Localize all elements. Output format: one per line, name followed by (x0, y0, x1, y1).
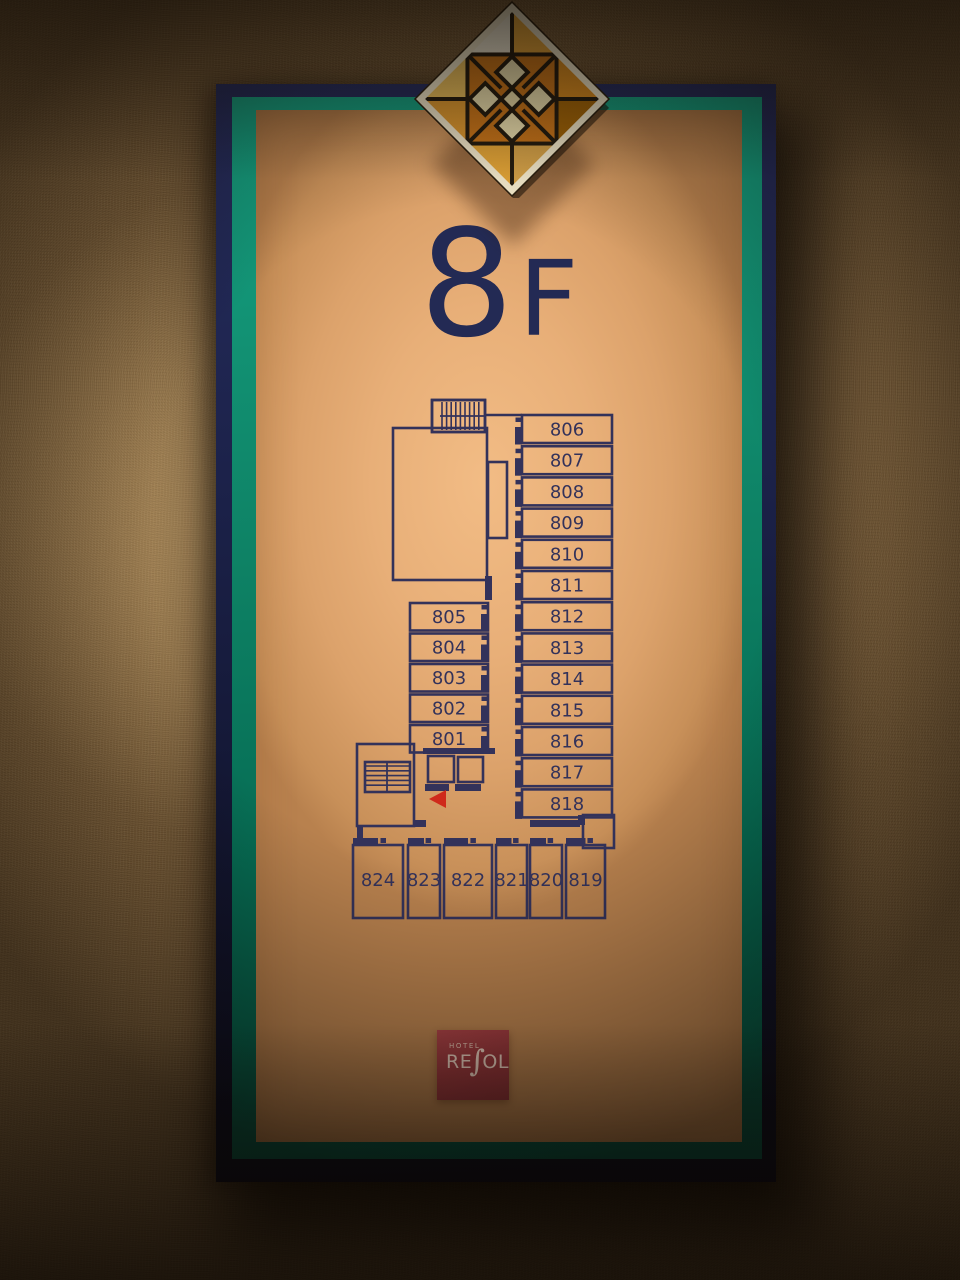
room-label-807: 807 (550, 451, 584, 472)
you-are-here-triangle-icon (429, 790, 446, 808)
room-label-820: 820 (529, 870, 563, 891)
wall-segment (515, 458, 522, 476)
room-803: 803 (410, 664, 488, 692)
door-jamb (548, 838, 554, 843)
door-jamb (516, 418, 522, 423)
wall-segment (515, 739, 522, 757)
room-809: 809 (515, 509, 612, 538)
door-jamb (516, 511, 522, 515)
room-label-812: 812 (550, 607, 584, 628)
room-label-823: 823 (407, 870, 441, 891)
door-jamb (381, 838, 387, 843)
wall-segment (455, 784, 481, 791)
door-jamb (587, 838, 593, 843)
wall-segment (515, 645, 522, 663)
room-label-806: 806 (550, 420, 584, 441)
room-810: 810 (515, 540, 612, 570)
wall-segment (353, 838, 378, 845)
room-label-814: 814 (550, 669, 584, 690)
door-jamb (516, 792, 522, 797)
room-label-809: 809 (550, 513, 584, 534)
room-label-815: 815 (550, 700, 584, 721)
door-jamb (516, 698, 522, 703)
floor-plan: 8068078088098108118128138148158168178188… (340, 390, 640, 935)
wall-segment (530, 838, 546, 845)
room-806: 806 (515, 415, 612, 445)
door-jamb (513, 838, 519, 843)
room-label-801: 801 (432, 729, 466, 750)
room-807: 807 (515, 446, 612, 476)
room-811: 811 (515, 571, 612, 601)
wall-segment (408, 838, 424, 845)
wall-segment (515, 489, 522, 507)
wall-segment (444, 838, 468, 845)
room-813: 813 (515, 633, 612, 663)
wall-segment (485, 576, 492, 600)
wall-segment (566, 838, 586, 845)
room-label-808: 808 (550, 482, 584, 503)
door-jamb (482, 605, 488, 610)
room-label-818: 818 (550, 794, 584, 815)
room-815: 815 (515, 696, 612, 726)
room-label-813: 813 (550, 638, 584, 659)
room-label-810: 810 (550, 544, 584, 565)
room-805: 805 (410, 603, 488, 631)
wall-segment (496, 838, 512, 845)
wall-segment (481, 645, 488, 662)
wall-segment (425, 784, 449, 791)
wall-segment (530, 820, 580, 827)
room-label-804: 804 (432, 638, 466, 659)
room-823: 823 (407, 838, 441, 918)
room-804: 804 (410, 634, 488, 662)
wall-segment (515, 801, 522, 819)
room-802: 802 (410, 695, 488, 723)
wall-segment (515, 708, 522, 726)
room-808: 808 (515, 477, 612, 507)
logo-brand-text: RE∫OL (446, 1051, 509, 1073)
wall-segment (515, 427, 522, 445)
door-jamb (516, 605, 522, 610)
door-jamb (516, 761, 522, 766)
door-jamb (516, 449, 522, 454)
photo-scene: 8F 8068078088098108118128138148158168178… (0, 0, 960, 1280)
wall-segment (481, 614, 488, 631)
wall-segment (515, 614, 522, 632)
door-jamb (470, 838, 476, 843)
room-819: 819 (566, 838, 605, 918)
room-label-819: 819 (568, 870, 602, 891)
wall-segment (515, 770, 522, 788)
wall-segment (515, 583, 522, 601)
elevator-square-icon (428, 756, 454, 782)
room-label-805: 805 (432, 607, 466, 628)
door-jamb (516, 730, 522, 735)
room-label-816: 816 (550, 732, 584, 753)
door-jamb (426, 838, 432, 843)
wall-segment (515, 677, 522, 695)
door-jamb (516, 636, 522, 641)
door-jamb (516, 667, 522, 672)
door-jamb (516, 542, 522, 547)
room-824: 824 (353, 838, 403, 918)
door-jamb (516, 574, 522, 579)
stained-glass-diamond-icon (412, 0, 612, 198)
small-room (583, 815, 614, 848)
wall-segment (515, 552, 522, 570)
room-820: 820 (529, 838, 563, 918)
door-jamb (482, 727, 488, 732)
room-label-803: 803 (432, 668, 466, 689)
sign-face-panel: 8F 8068078088098108118128138148158168178… (256, 110, 742, 1142)
room-label-821: 821 (494, 870, 528, 891)
room-label-822: 822 (451, 870, 485, 891)
room-label-817: 817 (550, 763, 584, 784)
wall-segment (515, 521, 522, 539)
room-814: 814 (515, 665, 612, 695)
room-label-811: 811 (550, 576, 584, 597)
logo-brand-ol: OL (482, 1051, 509, 1073)
room-821: 821 (494, 838, 528, 918)
room-816: 816 (515, 727, 612, 757)
wall-segment (481, 736, 488, 753)
room-817: 817 (515, 758, 612, 788)
room-label-824: 824 (361, 870, 395, 891)
wall-segment (481, 675, 488, 692)
room-812: 812 (515, 602, 612, 632)
door-jamb (482, 666, 488, 671)
wall-segment (481, 706, 488, 723)
door-jamb (516, 480, 522, 485)
wall-segment (414, 820, 426, 827)
room-label-802: 802 (432, 699, 466, 720)
nook (488, 462, 507, 538)
door-jamb (482, 636, 488, 641)
hotel-resol-logo: HOTEL RE∫OL (437, 1030, 509, 1100)
door-jamb (482, 697, 488, 702)
floor-suffix: F (519, 247, 579, 351)
room-822: 822 (444, 838, 492, 918)
elevator-square-icon (458, 757, 483, 782)
large-room (393, 428, 487, 580)
